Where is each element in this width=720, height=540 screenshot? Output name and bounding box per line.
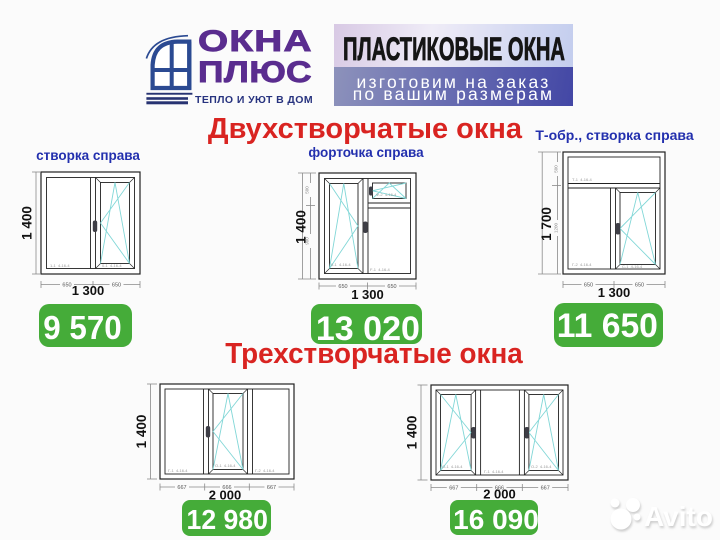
svg-text:Г-2 4-16-4: Г-2 4-16-4 — [255, 468, 275, 473]
svg-text:1 300: 1 300 — [351, 287, 384, 302]
svg-text:650: 650 — [635, 283, 644, 289]
svg-text:0-1 4-16-4: 0-1 4-16-4 — [331, 262, 351, 267]
svg-text:1 400: 1 400 — [405, 416, 420, 450]
svg-text:С-1 4-16-4: С-1 4-16-4 — [622, 264, 643, 269]
svg-text:1 400: 1 400 — [20, 206, 35, 240]
svg-text:650: 650 — [112, 283, 121, 289]
svg-text:500: 500 — [305, 186, 310, 194]
svg-text:1-1 4-16-4: 1-1 4-16-4 — [50, 263, 70, 268]
svg-text:650: 650 — [584, 283, 593, 289]
svg-text:1200: 1200 — [554, 222, 559, 233]
svg-text:О-1 4-16-4: О-1 4-16-4 — [215, 463, 236, 468]
svg-text:Г-1 4-16-4: Г-1 4-16-4 — [168, 468, 188, 473]
svg-text:900: 900 — [305, 237, 310, 245]
svg-text:Ф-2 4-16-4: Ф-2 4-16-4 — [376, 192, 397, 197]
svg-text:667: 667 — [541, 486, 550, 492]
svg-text:1 300: 1 300 — [598, 285, 631, 300]
svg-text:500: 500 — [554, 165, 559, 173]
svg-text:650: 650 — [62, 283, 71, 289]
svg-text:667: 667 — [267, 485, 276, 491]
svg-text:667: 667 — [449, 486, 458, 492]
svg-text:1 400: 1 400 — [134, 415, 149, 449]
svg-text:О-1 4-16-4: О-1 4-16-4 — [442, 464, 463, 469]
svg-text:Т-1 4-16-4: Т-1 4-16-4 — [572, 177, 593, 182]
svg-text:667: 667 — [177, 485, 186, 491]
svg-text:F-1 4-16-4: F-1 4-16-4 — [370, 267, 391, 272]
svg-text:1 700: 1 700 — [539, 207, 554, 241]
svg-text:0-1 4-16-4: 0-1 4-16-4 — [102, 263, 122, 268]
svg-text:Г-2 4-16-4: Г-2 4-16-4 — [572, 262, 592, 267]
svg-text:О-2 4-16-4: О-2 4-16-4 — [531, 464, 552, 469]
svg-text:650: 650 — [338, 284, 347, 290]
svg-text:Г-1 4-16-4: Г-1 4-16-4 — [484, 469, 504, 474]
svg-text:Avito: Avito — [644, 501, 713, 532]
svg-text:650: 650 — [387, 284, 396, 290]
svg-text:1 300: 1 300 — [72, 283, 105, 298]
